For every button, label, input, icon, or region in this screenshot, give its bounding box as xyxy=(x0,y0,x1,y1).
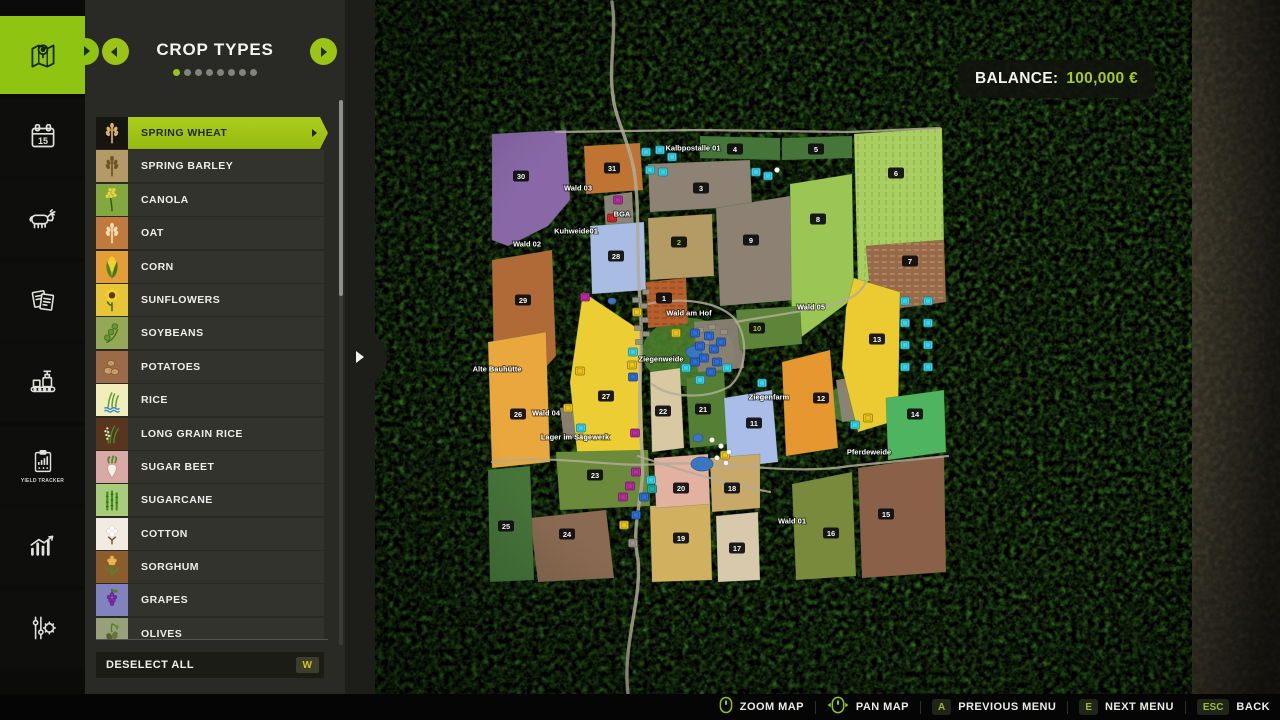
rice-icon xyxy=(96,384,128,416)
page-dot xyxy=(195,69,202,76)
page-dot xyxy=(206,69,213,76)
crop-list-scrollbar[interactable] xyxy=(339,100,343,645)
screen: 1234567891011121314151617181920212223242… xyxy=(0,0,1280,720)
tab-bump-arrow-icon xyxy=(84,46,90,56)
map-vignette xyxy=(375,0,1280,694)
crop-row[interactable]: SUNFLOWERS xyxy=(96,284,324,316)
crop-label: SUNFLOWERS xyxy=(141,294,220,306)
footer-hint-bar: ZOOM MAP PAN MAP A PREVIOUS MENU E NEXT … xyxy=(0,694,1280,720)
crop-row[interactable]: COTTON xyxy=(96,518,324,550)
crop-row[interactable]: POTATOES xyxy=(96,351,324,383)
olives-icon xyxy=(96,618,128,640)
bar-chart-icon xyxy=(25,529,61,565)
crop-row[interactable]: RICE xyxy=(96,384,324,416)
balance-display: BALANCE: 100,000 € xyxy=(958,60,1155,98)
sidebar-item-production[interactable] xyxy=(0,344,85,422)
yield-tracker-icon xyxy=(27,447,59,477)
left-arrow-icon xyxy=(111,47,117,57)
balance-label: BALANCE: xyxy=(975,70,1058,88)
crop-row[interactable]: OLIVES xyxy=(96,618,324,640)
crop-row[interactable]: SPRING BARLEY xyxy=(96,150,324,182)
crop-row[interactable]: GRAPES xyxy=(96,584,324,616)
hint-label: NEXT MENU xyxy=(1105,701,1174,713)
sugarcane-icon xyxy=(96,484,128,516)
wheat-icon xyxy=(96,117,128,149)
page-dot xyxy=(173,69,180,76)
crop-label: LONG GRAIN RICE xyxy=(141,428,243,440)
balance-value: 100,000 € xyxy=(1066,70,1138,88)
longrice-icon xyxy=(96,418,128,450)
map-pin-icon xyxy=(25,37,61,73)
crop-label: SPRING WHEAT xyxy=(141,127,227,139)
footer-separator xyxy=(1067,701,1068,714)
crop-row[interactable]: SORGHUM xyxy=(96,551,324,583)
hint-back: ESC BACK xyxy=(1197,699,1270,715)
contracts-icon xyxy=(25,283,61,319)
svg-text:15: 15 xyxy=(37,136,47,146)
active-tab-bump xyxy=(72,38,99,65)
page-dot xyxy=(217,69,224,76)
prev-category-button[interactable] xyxy=(102,38,129,65)
crop-label: OAT xyxy=(141,227,164,239)
sugarbeet-icon xyxy=(96,451,128,483)
sidebar-item-animals[interactable] xyxy=(0,180,85,258)
cotton-icon xyxy=(96,518,128,550)
calendar-icon: 15 xyxy=(25,119,61,155)
crop-row[interactable]: CORN xyxy=(96,251,324,283)
page-dot xyxy=(239,69,246,76)
crop-label: SOYBEANS xyxy=(141,327,204,339)
soybean-icon xyxy=(96,317,128,349)
page-dots xyxy=(85,69,345,76)
page-dot xyxy=(228,69,235,76)
scrollbar-thumb[interactable] xyxy=(339,100,343,296)
hint-label: BACK xyxy=(1236,701,1270,713)
hint-pan-map: PAN MAP xyxy=(827,696,909,719)
sidebar-item-calendar[interactable]: 15 xyxy=(0,98,85,176)
crop-label: CANOLA xyxy=(141,194,189,206)
crop-list: SPRING WHEATSPRING BARLEYCANOLAOATCORNSU… xyxy=(96,117,328,640)
mouse-pan-icon xyxy=(827,696,849,719)
hint-previous-menu: A PREVIOUS MENU xyxy=(932,699,1056,715)
crop-row[interactable]: SUGARCANE xyxy=(96,484,324,516)
key-esc-badge: ESC xyxy=(1197,699,1230,715)
production-icon xyxy=(25,365,61,401)
footer-separator xyxy=(920,701,921,714)
hint-zoom-map: ZOOM MAP xyxy=(719,696,804,719)
hint-label: ZOOM MAP xyxy=(740,701,804,713)
hint-label: PREVIOUS MENU xyxy=(958,701,1056,713)
crop-row[interactable]: SUGAR BEET xyxy=(96,451,324,483)
next-category-button[interactable] xyxy=(310,38,337,65)
crop-label: SPRING BARLEY xyxy=(141,160,233,172)
key-a-badge: A xyxy=(932,699,951,715)
sidebar-item-yield-tracker[interactable]: YIELD TRACKER xyxy=(0,426,85,504)
key-e-badge: E xyxy=(1079,699,1098,715)
potato-icon xyxy=(96,351,128,383)
oat-icon xyxy=(96,217,128,249)
deselect-all-button[interactable]: DESELECT ALL W xyxy=(96,652,324,678)
grapes-icon xyxy=(96,584,128,616)
page-dot xyxy=(184,69,191,76)
crop-label: SUGAR BEET xyxy=(141,461,214,473)
crop-label: GRAPES xyxy=(141,594,188,606)
crop-label: POTATOES xyxy=(141,361,201,373)
crop-label: SUGARCANE xyxy=(141,494,213,506)
key-w-badge: W xyxy=(296,657,319,673)
crop-label: SORGHUM xyxy=(141,561,199,573)
mouse-wheel-icon xyxy=(719,696,733,719)
crop-row[interactable]: OAT xyxy=(96,217,324,249)
corn-icon xyxy=(96,251,128,283)
hint-next-menu: E NEXT MENU xyxy=(1079,699,1174,715)
crop-row[interactable]: LONG GRAIN RICE xyxy=(96,418,324,450)
page-dot xyxy=(250,69,257,76)
sorghum-icon xyxy=(96,551,128,583)
sidebar-item-contracts[interactable] xyxy=(0,262,85,340)
canola-icon xyxy=(96,184,128,216)
crop-label: OLIVES xyxy=(141,628,182,640)
barley-icon xyxy=(96,150,128,182)
crop-row[interactable]: SOYBEANS xyxy=(96,317,324,349)
footer-separator xyxy=(815,701,816,714)
sidebar-item-statistics[interactable] xyxy=(0,508,85,586)
crop-row[interactable]: CANOLA xyxy=(96,184,324,216)
sidebar-item-settings[interactable] xyxy=(0,590,85,668)
crop-label: COTTON xyxy=(141,528,188,540)
footer-separator xyxy=(1185,701,1186,714)
crop-label: CORN xyxy=(141,261,174,273)
cow-icon xyxy=(25,201,61,237)
crop-row[interactable]: SPRING WHEAT xyxy=(96,117,328,149)
hint-label: PAN MAP xyxy=(856,701,909,713)
selected-arrow-icon xyxy=(312,129,317,137)
crop-types-panel: CROP TYPES SPRING WHEATSPRING BARLEYCANO… xyxy=(85,0,345,694)
right-arrow-icon xyxy=(321,47,327,57)
crop-label: RICE xyxy=(141,394,168,406)
sidebar: 15 xyxy=(0,0,85,694)
collapse-arrow-icon[interactable] xyxy=(356,351,364,363)
deselect-all-label: DESELECT ALL xyxy=(106,659,194,671)
yield-tracker-caption: YIELD TRACKER xyxy=(21,478,64,484)
sunflower-icon xyxy=(96,284,128,316)
settings-icon xyxy=(25,611,61,647)
